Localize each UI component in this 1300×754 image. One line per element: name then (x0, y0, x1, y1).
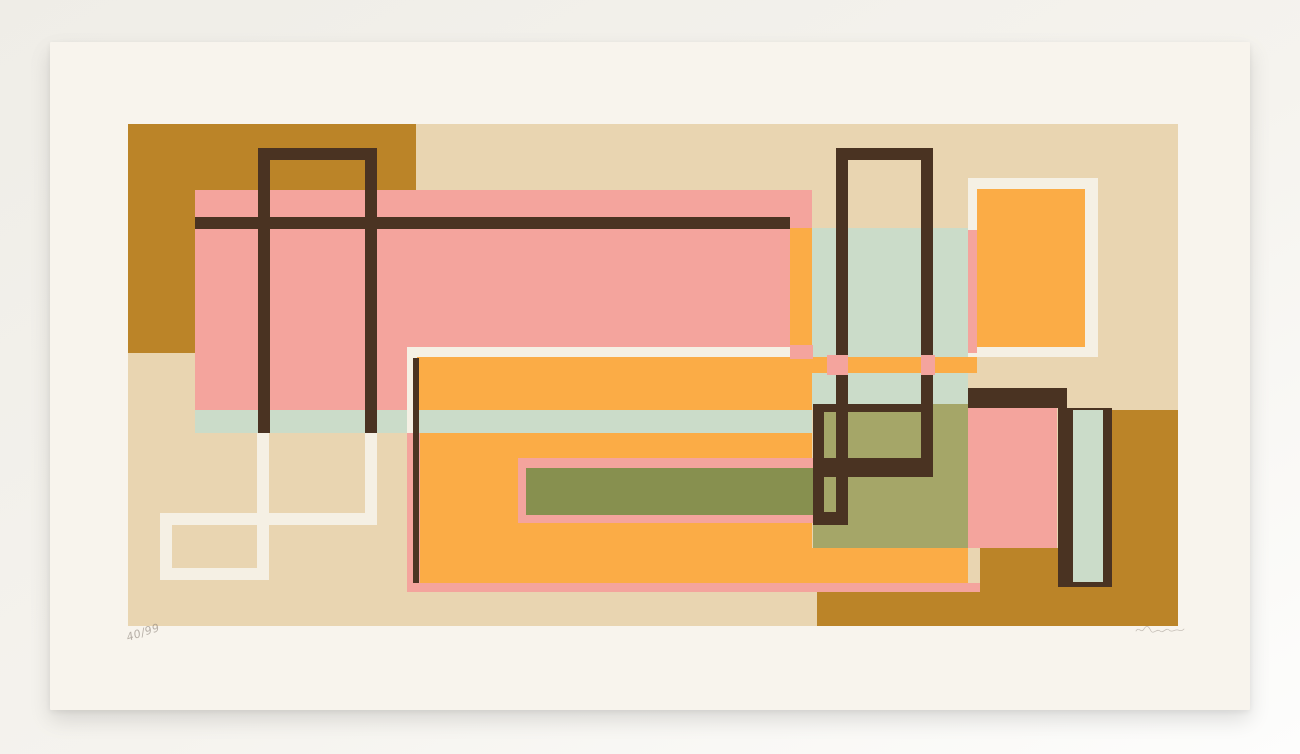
olive-bar (526, 468, 813, 515)
brown-frame-left-v2 (365, 148, 377, 433)
brown-frame-right-v3 (813, 404, 824, 525)
pink-edge-strip (968, 230, 977, 353)
mint-band-center (195, 410, 812, 433)
mint-bar-vertical (1073, 410, 1103, 582)
brown-ledge-mid (813, 458, 933, 477)
brown-inner-edge-line (413, 358, 419, 583)
white-line-bottom (160, 568, 268, 580)
white-line-horizontal (160, 513, 377, 525)
white-line-mid-vertical (257, 433, 269, 580)
photo-backdrop: { "artwork": { "type": "abstract geometr… (0, 0, 1300, 754)
pink-crossing-left (827, 355, 848, 375)
white-line-right-vertical (365, 433, 377, 525)
orange-block-top-right (977, 189, 1085, 347)
orange-field-extension (812, 548, 968, 585)
brown-crossbar-long (195, 217, 790, 229)
pink-corner-rect (790, 345, 813, 359)
brown-frame-left-v1 (258, 148, 270, 433)
brown-frame-right-v2 (921, 148, 933, 470)
brown-ledge-top (813, 404, 933, 412)
artist-signature (1135, 624, 1185, 636)
pink-band-bottom (407, 583, 980, 592)
print-area (128, 124, 1178, 626)
orange-strip-vertical (790, 228, 812, 347)
brown-band-right (968, 388, 1067, 408)
mustard-strip-bottom (817, 592, 1178, 626)
brown-frame-right-top (836, 148, 933, 160)
white-border-top (407, 347, 790, 357)
brown-frame-left-top (258, 148, 377, 160)
pink-block-right (968, 408, 1057, 548)
pink-crossing-right (921, 355, 935, 375)
paper-sheet: 40/99 (50, 42, 1250, 710)
